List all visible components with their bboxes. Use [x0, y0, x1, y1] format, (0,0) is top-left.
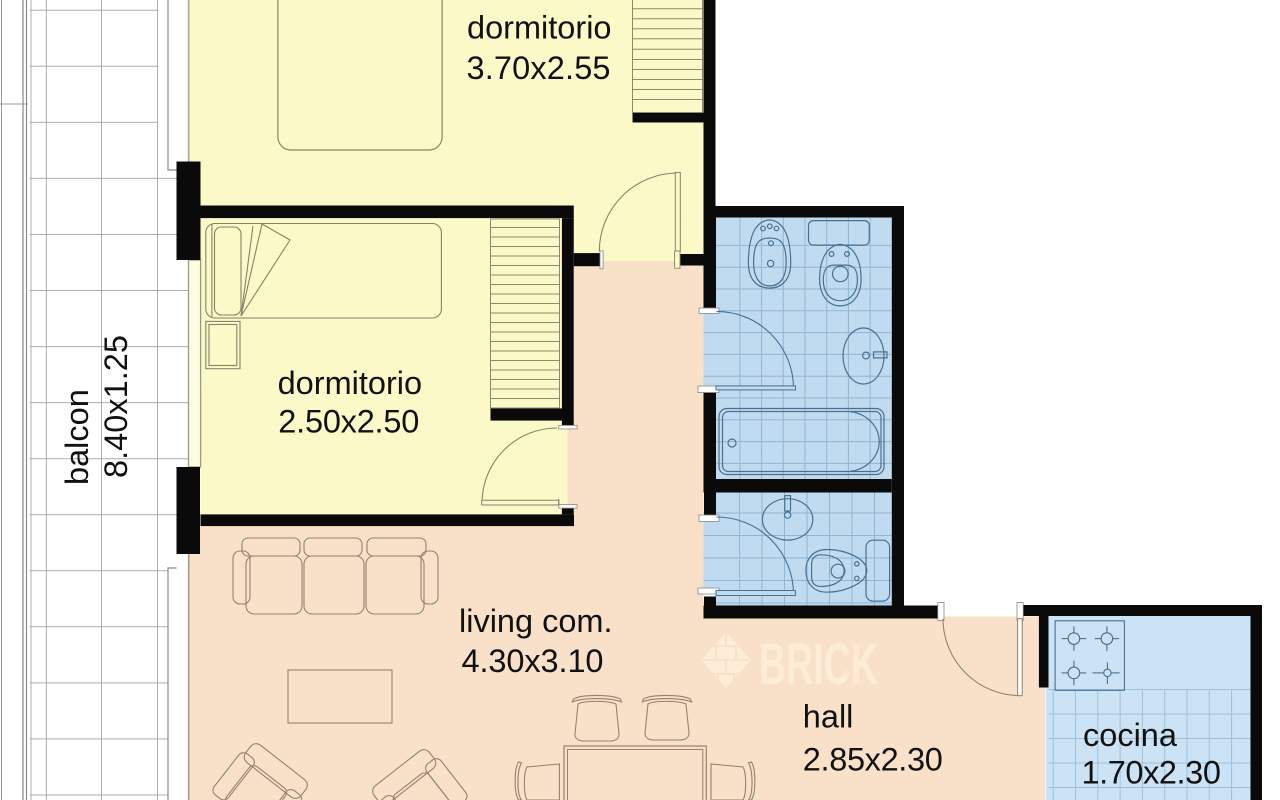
svg-text:1.70x2.30: 1.70x2.30 [1082, 754, 1221, 790]
svg-text:2.50x2.50: 2.50x2.50 [278, 403, 419, 439]
svg-text:2.85x2.30: 2.85x2.30 [803, 742, 943, 778]
svg-text:3.70x2.55: 3.70x2.55 [467, 50, 611, 86]
svg-text:8.40x1.25: 8.40x1.25 [98, 335, 134, 478]
svg-text:dormitorio: dormitorio [467, 10, 612, 46]
svg-text:balcon: balcon [59, 389, 95, 485]
svg-text:hall: hall [803, 699, 854, 735]
svg-text:living com.: living com. [459, 603, 613, 639]
svg-text:4.30x3.10: 4.30x3.10 [462, 643, 604, 679]
svg-text:BRICK: BRICK [759, 632, 878, 697]
svg-text:dormitorio: dormitorio [278, 365, 423, 401]
svg-text:cocina: cocina [1083, 717, 1178, 753]
